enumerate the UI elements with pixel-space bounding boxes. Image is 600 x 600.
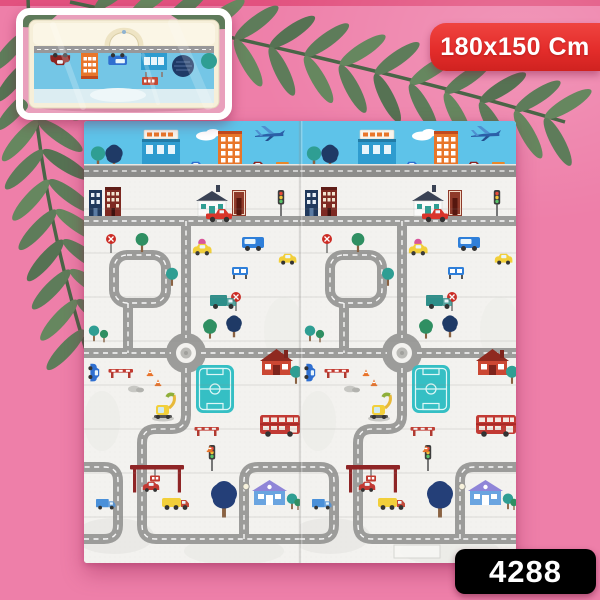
inset-photo xyxy=(16,8,232,120)
product-code-label: 4288 xyxy=(489,554,562,590)
size-ribbon: 180x150 Cm xyxy=(430,23,600,71)
mat-panel-right xyxy=(290,121,516,563)
size-label: 180x150 Cm xyxy=(440,33,590,62)
product-photo: 180x150 Cm 4288 xyxy=(0,0,600,600)
mat-label-patch xyxy=(394,545,440,558)
mat-panel-left xyxy=(84,121,304,563)
product-code-badge: 4288 xyxy=(455,549,596,594)
center-seam xyxy=(300,121,302,563)
play-mat xyxy=(84,121,516,563)
inset-photo-scene xyxy=(23,15,225,113)
